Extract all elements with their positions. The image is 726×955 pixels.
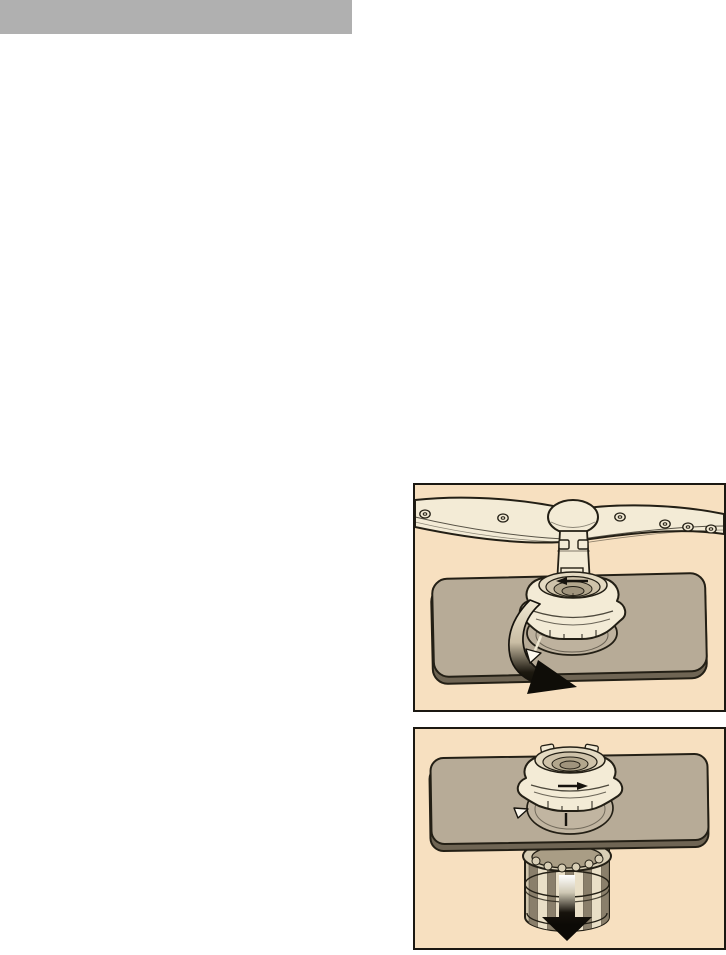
- header-bar: [0, 0, 352, 34]
- figure-remove-filter: [413, 727, 726, 950]
- figure-turn-locking-ring: [413, 483, 726, 712]
- turn-locking-ring-illustration: [415, 485, 724, 710]
- spray-arm-hub-dome: [548, 500, 598, 534]
- manual-page: [0, 0, 726, 955]
- remove-filter-illustration: [415, 729, 724, 948]
